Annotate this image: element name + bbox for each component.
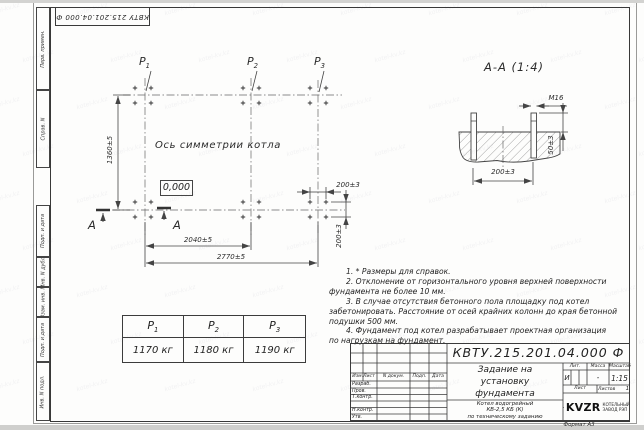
side-strip-cell: Перв. примен.	[36, 7, 50, 90]
p1-sub: 1	[146, 62, 150, 70]
note-line: 2. Отклонение от горизонтального уровня …	[329, 277, 635, 287]
side-strip-cell: Инв. N дубл.	[36, 257, 50, 287]
elevation-mark: 0,000	[160, 180, 193, 196]
p2-sub: 2	[254, 62, 258, 70]
dim-200-vertical: 200±3	[335, 212, 343, 260]
dim-m16: M16	[542, 94, 570, 102]
side-strip-label: Подп. и дата	[40, 214, 46, 248]
dim-200-horizontal: 200±3	[333, 181, 363, 189]
notes-block: 1. * Размеры для справок. 2. Отклонение …	[329, 267, 635, 346]
section-letter-left: А	[88, 218, 96, 232]
side-strip: Перв. примен. Справ. N Подп. и дата Инв.…	[36, 7, 50, 421]
side-strip-cell: Подп. и дата	[36, 205, 50, 257]
side-strip-label: Взам. инв. N	[40, 287, 46, 317]
dim-200-section: 200±3	[487, 168, 519, 176]
note-line: 1. * Размеры для справок.	[329, 267, 635, 277]
dim-50: 50±3	[547, 121, 555, 169]
p3-base: P	[314, 55, 321, 68]
loads-table-value: 1190 кг	[244, 338, 305, 362]
side-strip-label: Справ. N	[40, 118, 46, 141]
side-strip-cell: Взам. инв. N	[36, 287, 50, 317]
side-strip-label: Подп. и дата	[40, 322, 46, 356]
axis-of-symmetry-label: Ось симметрии котла	[155, 140, 281, 151]
dim-1360: 1360±5	[106, 125, 114, 175]
note-line: забетонировать. Расстояние от осей крайн…	[329, 307, 635, 317]
loads-table-header: P1	[123, 316, 184, 338]
p-label-leaders	[146, 71, 324, 92]
dim-2770: 2770±5	[206, 253, 256, 261]
side-strip-cell: Справ. N	[36, 90, 50, 168]
section-letter-right: А	[173, 218, 181, 232]
plan-point-label-p3: P3	[314, 55, 325, 70]
loads-table: P1 P2 P3 1170 кг 1180 кг 1190 кг	[122, 315, 306, 363]
plan-dimensions	[113, 95, 351, 267]
top-stamp-text: КВТУ 215.201.04.000 Ф	[56, 13, 149, 21]
plan-point-label-p2: P2	[247, 55, 258, 70]
title-block	[350, 343, 630, 421]
note-line: фундамента не более 10 мм.	[329, 287, 635, 297]
loads-table-header: P2	[184, 316, 245, 338]
side-strip-cell: Инв. N подл.	[36, 362, 50, 421]
side-strip-label: Перв. примен.	[40, 30, 46, 68]
note-line: 4. Фундамент под котел разрабатывает про…	[329, 326, 635, 336]
section-title: А-А (1:4)	[472, 60, 556, 74]
p3-sub: 3	[321, 62, 325, 70]
loads-table-header: P3	[244, 316, 305, 338]
top-stamp: КВТУ 215.201.04.000 Ф	[55, 7, 150, 26]
format-label: Формат А3	[544, 422, 614, 428]
p1-base: P	[139, 55, 146, 68]
side-strip-cell: Подп. и дата	[36, 317, 50, 362]
plan-point-label-p1: P1	[139, 55, 150, 70]
dim-2040: 2040±5	[173, 236, 223, 244]
side-strip-label: Инв. N подл.	[40, 375, 46, 408]
loads-table-value: 1180 кг	[184, 338, 245, 362]
anchor-bolt-points	[133, 86, 328, 219]
note-line: подушки 500 мм.	[329, 317, 635, 327]
side-strip-label: Инв. N дубл.	[40, 257, 46, 287]
drawing-sheet: КВТУ 215.201.04.000 Ф Перв. примен. Спра…	[0, 0, 644, 430]
loads-table-value: 1170 кг	[123, 338, 184, 362]
p2-base: P	[247, 55, 254, 68]
note-line: 3. В случае отсутствия бетонного пола пл…	[329, 297, 635, 307]
